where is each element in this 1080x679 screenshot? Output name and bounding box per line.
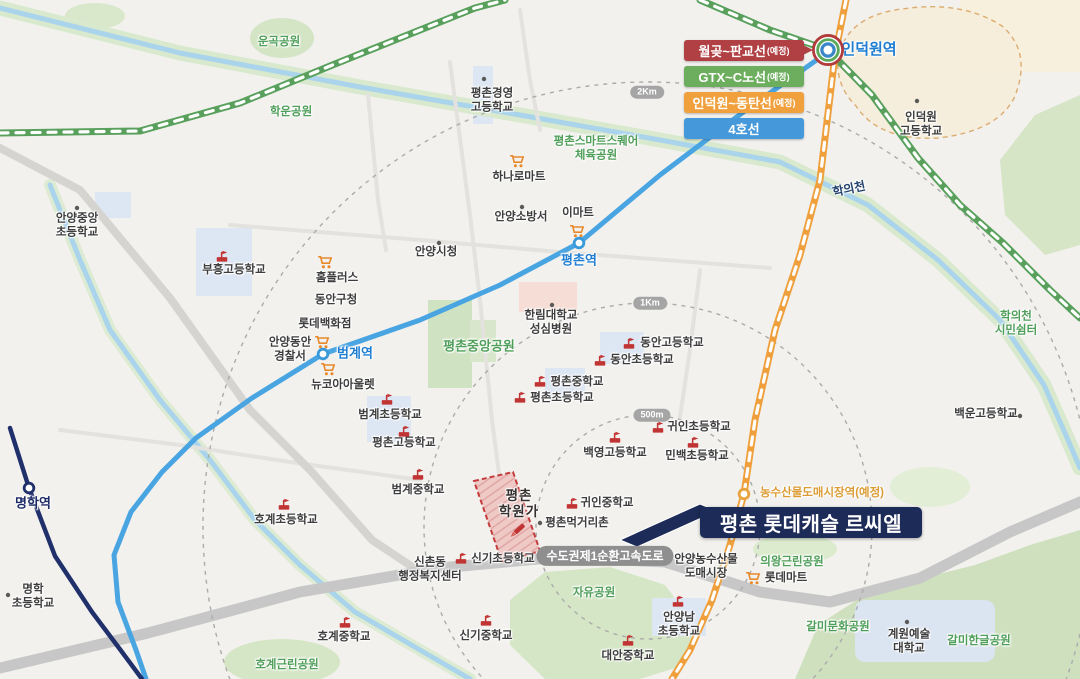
map-label: 호계근린공원 <box>255 659 318 673</box>
map-label: 인덕원역 <box>841 41 896 59</box>
map-label: 귀인중학교 <box>581 497 634 511</box>
map-label: 민백초등학교 <box>665 450 728 464</box>
map-label: 대안중학교 <box>602 650 655 664</box>
map-label: 명학 초등학교 <box>12 583 54 610</box>
map-label: 갈미한글공원 <box>947 635 1010 649</box>
transit-line-status: (예정) <box>773 96 796 109</box>
dot-icon <box>520 205 525 210</box>
map-label: 범계초등학교 <box>358 409 421 423</box>
cart-icon <box>320 362 336 377</box>
dot-icon <box>482 77 487 82</box>
map-label: 신기초등학교 <box>471 553 534 567</box>
school-icon <box>397 425 412 438</box>
transit-badges: 월곶~판교선(예정)GTX~C노선(예정)인덕원~동탄선(예정)4호선 <box>684 40 804 144</box>
map-label: 안양동안 경찰서 <box>269 336 311 363</box>
map-label: 갈미문화공원 <box>806 621 869 635</box>
station-orange-icon <box>738 488 751 501</box>
map-label: 범계역 <box>337 345 373 360</box>
map-label: 평촌역 <box>561 252 597 267</box>
map-label: 안양중앙 초등학교 <box>56 212 98 239</box>
map-label: 자유공원 <box>573 587 615 601</box>
school-icon <box>671 595 686 608</box>
transit-line-badge: 인덕원~동탄선(예정) <box>684 92 804 113</box>
map-label: 안양시청 <box>415 246 457 260</box>
map-label: 뉴코아아울렛 <box>311 379 374 393</box>
map-label: 하나로마트 <box>493 171 546 185</box>
map-label: 평촌 학원가 <box>499 488 539 520</box>
map-label: 평촌스마트스퀘어 체육공원 <box>554 135 639 162</box>
school-icon <box>454 552 469 565</box>
map-label: 신기중학교 <box>460 630 513 644</box>
dot-icon <box>915 99 920 104</box>
map-label: 안양소방서 <box>495 211 548 225</box>
map-label: 안양농수산물 도매시장 <box>674 553 737 580</box>
school-icon <box>565 497 580 510</box>
map-label: 신촌동 행정복지센터 <box>398 556 461 583</box>
map-label: 백운고등학교 <box>954 408 1017 422</box>
map-labels-layer: 인덕원역평촌역범계역명학역농수산물도매시장역(예정)운곡공원학운공원평촌스마트스… <box>0 0 1080 679</box>
map-label: 부흥고등학교 <box>202 264 265 278</box>
map-label: 평촌경영 고등학교 <box>471 87 513 114</box>
school-icon <box>621 634 636 647</box>
transit-line-label: 4호선 <box>728 119 759 138</box>
map-label: 학운공원 <box>270 106 312 120</box>
school-icon <box>277 498 292 511</box>
school-icon <box>651 421 666 434</box>
school-icon <box>593 354 608 367</box>
map-label: 계원예술 대학교 <box>888 628 930 655</box>
station-blue-icon <box>573 237 586 250</box>
cart-icon <box>745 571 761 586</box>
map-label: 호계초등학교 <box>254 514 317 528</box>
school-icon <box>513 391 528 404</box>
map-label: 동안구청 <box>315 294 357 308</box>
school-icon <box>338 616 353 629</box>
transit-line-label: 인덕원~동탄선 <box>693 93 772 112</box>
school-icon <box>686 436 701 449</box>
transit-line-status: (예정) <box>767 44 790 57</box>
map-label: 동안초등학교 <box>610 354 673 368</box>
map-label: 안양남 초등학교 <box>658 611 700 638</box>
dot-icon <box>437 241 442 246</box>
school-icon <box>380 393 395 406</box>
pencil-icon <box>506 520 528 542</box>
map-label: 호계중학교 <box>318 631 371 645</box>
map-label: 500m <box>633 409 670 422</box>
map-label: 평촌고등학교 <box>372 437 435 451</box>
map-label: 농수산물도매시장역(예정) <box>760 487 884 501</box>
school-icon <box>608 431 623 444</box>
school-icon <box>533 375 548 388</box>
map-label: 평촌중학교 <box>551 376 604 390</box>
map-label: 2Km <box>630 86 664 99</box>
map-label: 학의천 시민쉼터 <box>995 310 1037 337</box>
station-blue-icon <box>317 348 330 361</box>
school-icon <box>215 250 230 263</box>
map-label: 인덕원 고등학교 <box>900 111 942 138</box>
map-label: 운곡공원 <box>258 36 300 50</box>
map-label: 의왕근린공원 <box>760 556 823 570</box>
school-icon <box>622 337 637 350</box>
map-label: 명학역 <box>15 495 51 510</box>
station-navy-icon <box>23 482 36 495</box>
map-label: 평촌중앙공원 <box>443 338 515 353</box>
school-icon <box>479 614 494 627</box>
map-label: 이마트 <box>562 207 594 221</box>
transit-line-status: (예정) <box>767 70 790 83</box>
map-label: 귀인초등학교 <box>667 421 730 435</box>
map-label: 롯데백화점 <box>299 318 352 332</box>
map-label: 평촌먹거리촌 <box>545 517 608 531</box>
cart-icon <box>317 255 333 270</box>
transit-line-badge: 4호선 <box>684 118 804 139</box>
dot-icon <box>550 303 555 308</box>
dot-icon <box>1018 414 1023 419</box>
map-label: 롯데마트 <box>765 572 807 586</box>
site-callout: 평촌 롯데캐슬 르씨엘 <box>700 507 922 538</box>
dot-icon <box>75 206 80 211</box>
dot-icon <box>6 593 11 598</box>
transit-line-label: 월곶~판교선 <box>699 41 766 60</box>
map-label: 한림대학교 성심병원 <box>525 309 578 336</box>
map-label: 홈플러스 <box>316 272 358 286</box>
transit-line-label: GTX~C노선 <box>698 67 766 86</box>
cart-icon <box>509 154 525 169</box>
location-map: 인덕원역평촌역범계역명학역농수산물도매시장역(예정)운곡공원학운공원평촌스마트스… <box>0 0 1080 679</box>
transit-line-badge: 월곶~판교선(예정) <box>684 40 804 61</box>
dot-icon <box>538 521 543 526</box>
dot-icon <box>905 620 910 625</box>
station-hub-icon <box>812 34 844 66</box>
school-icon <box>411 468 426 481</box>
map-label: 1Km <box>633 297 667 310</box>
map-label: 동안고등학교 <box>640 337 703 351</box>
map-label: 학의천 <box>831 179 866 200</box>
map-label: 범계중학교 <box>392 484 445 498</box>
map-label: 수도권제1순환고속도로 <box>536 546 673 566</box>
map-label: 평촌초등학교 <box>530 392 593 406</box>
map-label: 백영고등학교 <box>583 447 646 461</box>
transit-line-badge: GTX~C노선(예정) <box>684 66 804 87</box>
